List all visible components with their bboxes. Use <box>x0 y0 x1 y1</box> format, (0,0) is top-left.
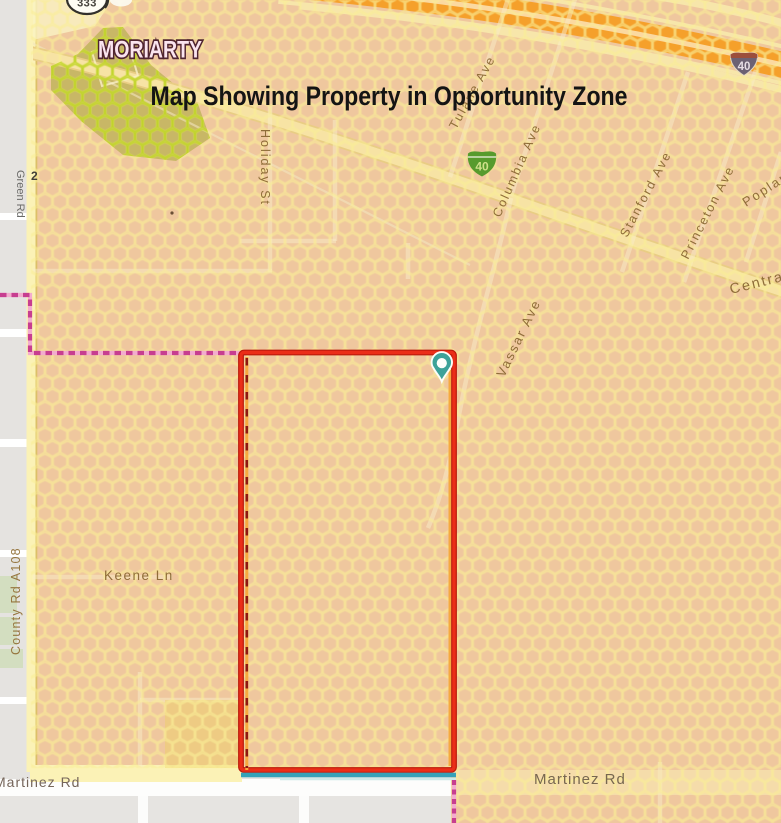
svg-text:Map Showing Property in Opport: Map Showing Property in Opportunity Zone <box>151 81 628 111</box>
svg-text:40: 40 <box>738 61 751 73</box>
svg-text:40: 40 <box>475 160 489 174</box>
svg-text:Holiday St: Holiday St <box>258 129 272 206</box>
svg-text:MORIARTY: MORIARTY <box>98 37 202 64</box>
svg-text:Martinez Rd: Martinez Rd <box>534 771 626 788</box>
svg-text:Keene Ln: Keene Ln <box>104 568 174 583</box>
svg-text:333: 333 <box>77 0 97 10</box>
svg-text:Martinez Rd: Martinez Rd <box>0 774 80 790</box>
svg-text:County Rd A108: County Rd A108 <box>9 547 23 655</box>
svg-text:2: 2 <box>31 169 38 183</box>
svg-text:Green Rd: Green Rd <box>14 170 26 218</box>
